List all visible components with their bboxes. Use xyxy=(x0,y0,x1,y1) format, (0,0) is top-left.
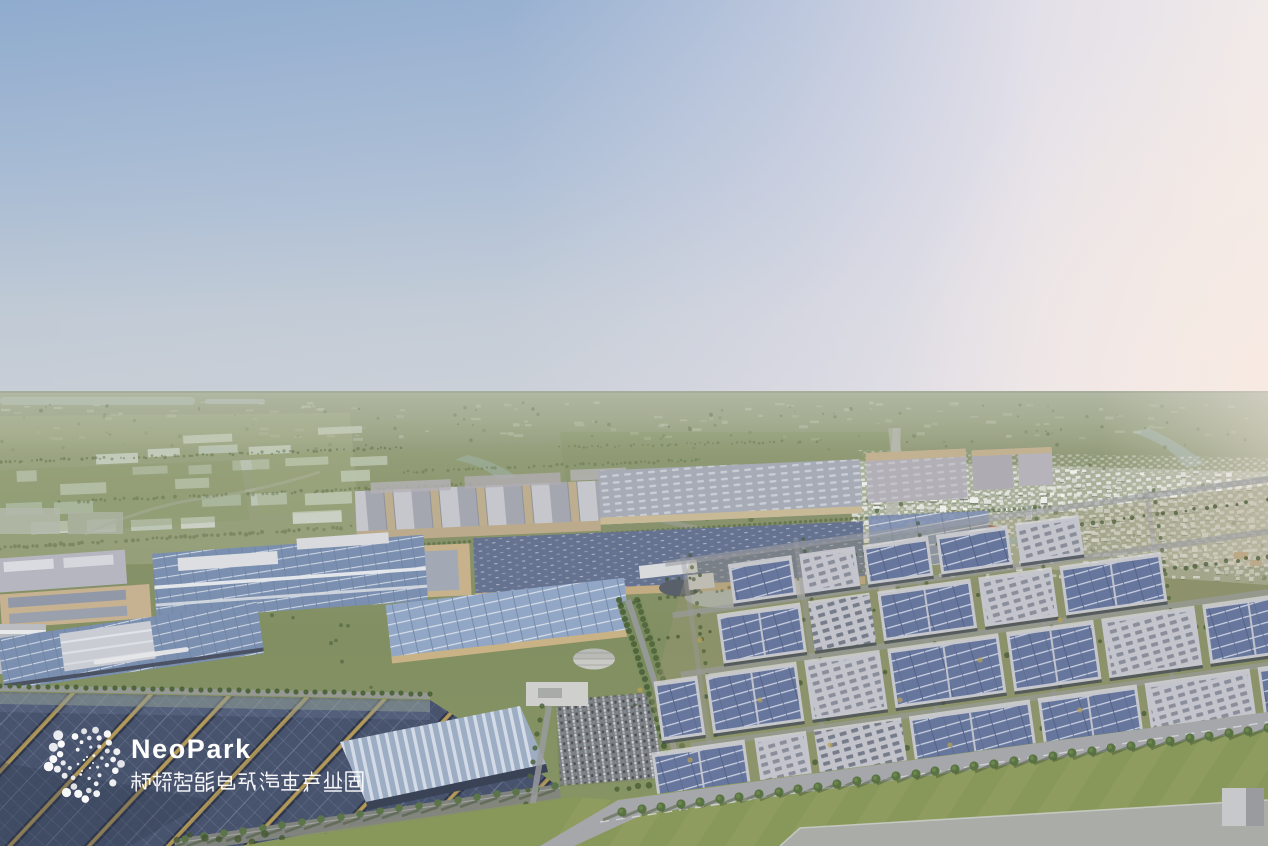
svg-text:NeoPark: NeoPark xyxy=(131,734,252,764)
